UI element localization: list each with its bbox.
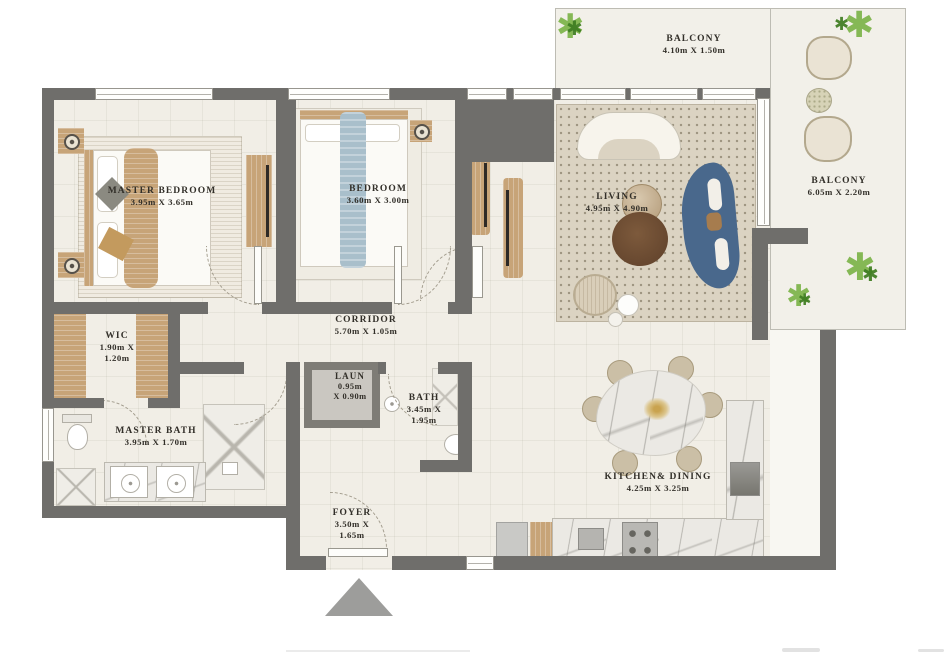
nightstand xyxy=(58,252,84,278)
room-name: WIC xyxy=(62,331,172,341)
master-bed-headboard xyxy=(84,150,93,286)
tv-panel xyxy=(484,163,487,227)
wall-foyer-left xyxy=(286,362,300,418)
wall-bottom-main xyxy=(392,556,836,570)
wall-masterbath-top xyxy=(180,362,244,374)
room-name: MASTER BATH xyxy=(86,426,226,436)
room-dims: 5.70m X 1.05m xyxy=(296,326,436,336)
window xyxy=(560,88,626,100)
kitchen-counter-right xyxy=(726,400,764,520)
room-label-master-bedroom: MASTER BEDROOM 3.95m X 3.65m xyxy=(77,186,247,207)
room-name: BALCONY xyxy=(604,34,784,44)
room-dims: 4.95m X 4.90m xyxy=(547,203,687,213)
wall-right xyxy=(820,330,836,570)
room-name: BALCONY xyxy=(776,176,902,186)
room-label-bedroom: BEDROOM 3.60m X 3.00m xyxy=(308,184,448,205)
plant-icon: ✱ ✱ xyxy=(784,282,828,322)
sofa-cushion xyxy=(707,178,723,211)
wall-bedroom-right xyxy=(455,98,472,308)
page-edge-mark xyxy=(918,649,944,652)
sink-bowl xyxy=(167,474,186,493)
wall-right-stub xyxy=(752,228,808,244)
window xyxy=(702,88,756,100)
sink xyxy=(110,466,148,498)
wall-bath-top xyxy=(438,362,458,374)
white-mask-bottom-left xyxy=(0,518,286,660)
window xyxy=(42,408,54,462)
room-name: MASTER BEDROOM xyxy=(77,186,247,196)
plant-icon: ✱ ✱ xyxy=(834,6,884,52)
hall-cabinet xyxy=(470,155,490,235)
entrance-door-leaf xyxy=(328,548,388,557)
page-edge-mark xyxy=(782,648,820,652)
wall-column xyxy=(472,98,554,162)
sink xyxy=(156,466,194,498)
room-label-kitchen-dining: KITCHEN& DINING 4.25m X 3.25m xyxy=(568,472,748,493)
room-name: LAUN xyxy=(310,371,390,381)
room-label-bath: BATH 3.45m X 1.95m xyxy=(374,393,474,425)
sofa-pillow xyxy=(706,212,723,231)
window xyxy=(467,88,507,100)
sink-bowl xyxy=(121,474,140,493)
wall-foyer-left xyxy=(286,412,300,570)
side-table xyxy=(617,294,639,316)
room-dims: 1.95m xyxy=(374,415,474,425)
lamp-icon xyxy=(64,134,80,150)
door-leaf xyxy=(254,246,262,304)
wall-wic-bottom xyxy=(42,398,104,408)
room-label-master-bath: MASTER BATH 3.95m X 1.70m xyxy=(86,426,226,447)
armchair xyxy=(573,274,617,316)
room-label-wic: WIC 1.90m X 1.20m xyxy=(62,331,172,363)
room-dims: 1.90m X xyxy=(62,342,172,352)
service-strip-floor xyxy=(770,330,820,556)
room-label-balcony-right: BALCONY 6.05m X 2.20m xyxy=(776,176,902,197)
room-name: BEDROOM xyxy=(308,184,448,194)
dining-table-accent xyxy=(644,398,670,420)
toilet xyxy=(62,414,92,423)
door-leaf xyxy=(472,246,483,298)
wall-wic-bottom xyxy=(148,398,180,408)
balcony-sliding-door xyxy=(757,98,770,226)
plant-icon: ✱ ✱ xyxy=(556,10,600,54)
toilet-bowl xyxy=(67,424,88,450)
room-dims: 6.05m X 2.20m xyxy=(776,187,902,197)
wall-bath-bottom xyxy=(420,460,472,472)
room-dims: 3.95m X 1.70m xyxy=(86,437,226,447)
tv-panel xyxy=(266,165,269,237)
shower-drain xyxy=(222,462,238,475)
room-dims: 4.10m X 1.50m xyxy=(604,45,784,55)
room-dims: 1.65m xyxy=(302,530,402,540)
balcony-table xyxy=(806,88,832,113)
master-bed-runner xyxy=(124,148,158,288)
room-dims: 3.95m X 3.65m xyxy=(77,197,247,207)
room-label-living: LIVING 4.95m X 4.90m xyxy=(547,192,687,213)
window xyxy=(630,88,698,100)
room-name: LIVING xyxy=(547,192,687,202)
room-dims: 0.95m xyxy=(310,382,390,391)
window xyxy=(95,88,213,100)
entrance-arrow-icon xyxy=(325,578,393,616)
room-name: FOYER xyxy=(302,508,402,518)
wall-under-master-bedroom xyxy=(54,302,208,314)
master-wardrobe xyxy=(246,155,272,247)
corner-shower xyxy=(56,468,96,506)
kitchen-sink xyxy=(578,528,604,550)
room-dims: 3.50m X xyxy=(302,519,402,529)
sofa-cushion xyxy=(714,238,730,271)
wall-bottom-left xyxy=(42,506,300,518)
room-name: BATH xyxy=(374,393,474,403)
wall-under-master-bedroom xyxy=(262,302,296,314)
window xyxy=(288,88,390,100)
door-leaf xyxy=(394,246,402,304)
room-name: KITCHEN& DINING xyxy=(568,472,748,482)
lamp-icon xyxy=(414,124,430,140)
room-dims: 3.45m X xyxy=(374,404,474,414)
room-label-foyer: FOYER 3.50m X 1.65m xyxy=(302,508,402,540)
wall-under-bedroom xyxy=(296,302,392,314)
window xyxy=(513,88,553,100)
window xyxy=(466,556,494,570)
side-table xyxy=(608,312,623,327)
wall-divider-bedrooms xyxy=(276,98,296,308)
room-dims: 4.25m X 3.25m xyxy=(568,483,748,493)
lamp-icon xyxy=(64,258,80,274)
tv-panel xyxy=(506,190,509,266)
plant-icon: ✱ ✱ xyxy=(840,248,890,298)
nightstand xyxy=(58,128,84,154)
wall-kitchen-right xyxy=(752,244,768,340)
room-label-balcony-top: BALCONY 4.10m X 1.50m xyxy=(604,34,784,55)
room-name: CORRIDOR xyxy=(296,315,436,325)
room-dims: 1.20m xyxy=(62,353,172,363)
sofa-white xyxy=(577,112,681,160)
coffee-table-brown xyxy=(612,212,668,266)
balcony-chair xyxy=(804,116,852,162)
nightstand xyxy=(410,120,432,142)
room-label-corridor: CORRIDOR 5.70m X 1.05m xyxy=(296,315,436,336)
floor-plan: ✱ ✱ ✱ ✱ ✱ ✱ ✱ ✱ xyxy=(0,0,949,660)
room-dims: 3.60m X 3.00m xyxy=(308,195,448,205)
wall-under-bedroom xyxy=(448,302,472,314)
wall-entrance-left xyxy=(298,556,326,570)
hall-cabinet xyxy=(503,178,523,278)
sofa-seat-cut xyxy=(598,139,660,159)
